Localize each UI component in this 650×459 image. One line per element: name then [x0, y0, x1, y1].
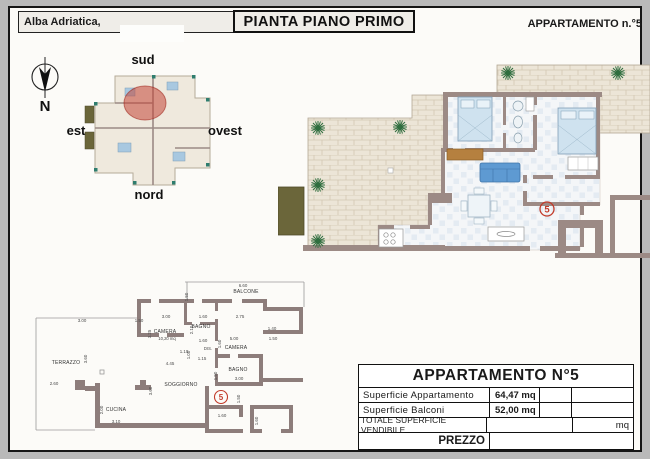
room-label-bagno1: BAGNO: [191, 324, 210, 330]
dimension-label: 1.10: [180, 349, 189, 354]
dimension-label: 2.60: [50, 381, 59, 386]
room-label-terrazzo: TERRAZZO: [52, 360, 81, 366]
unit-number: 5: [219, 393, 224, 402]
sofa: [480, 163, 520, 182]
pillow: [477, 100, 490, 108]
site-olive-blocks: [85, 106, 94, 149]
room-label-camera1: CAMERA: [154, 329, 177, 335]
apartment-summary-table: APPARTAMENTO N°5 Superficie Appartamento…: [358, 364, 634, 450]
orientation-east: est: [67, 123, 86, 138]
empty-cell: [540, 388, 572, 402]
dimension-label: 1.60: [217, 339, 222, 348]
dimension-label: 1.15: [198, 356, 207, 361]
sideboard: [447, 149, 483, 160]
empty-cell: [490, 433, 633, 449]
kitchen-counter: [379, 229, 403, 247]
room-labels: BALCONE CAMERA 10,20 mq BAGNO DIS. CAMER…: [52, 289, 259, 413]
location-label: Alba Adriatica,: [24, 16, 101, 28]
apartment-ref-label: APPARTAMENTO n.°5: [508, 18, 642, 30]
empty-cell: [572, 388, 633, 402]
shower: [526, 97, 534, 111]
dimension-label: 1.60: [199, 338, 208, 343]
row-value: 64,47 mq: [490, 388, 540, 402]
dimension-label: 6.60: [239, 283, 248, 288]
row-label: Superficie Appartamento: [359, 388, 490, 402]
dimension-label: 2.75: [236, 314, 245, 319]
table-row-price: PREZZO: [359, 433, 633, 449]
dimension-label: 1.40: [268, 326, 277, 331]
dimension-label: 4.45: [166, 361, 175, 366]
room-label-soggiorno: SOGGIORNO: [164, 382, 197, 388]
dimensioned-floor-plan: 6.60 1.50 3.00 1.60 2.75 1.40 1.50 3.25 …: [30, 276, 345, 456]
north-label: N: [40, 98, 51, 115]
dimension-label: 3.25: [147, 329, 152, 338]
dimension-label: 1.60: [218, 413, 227, 418]
large-floor-plan: 5: [278, 45, 650, 260]
dimension-label: 5.00: [230, 336, 239, 341]
toilet: [514, 116, 523, 128]
room-label-balcone: BALCONE: [233, 289, 259, 295]
dimension-label: 3.60: [148, 386, 153, 395]
page-title-box: PIANTA PIANO PRIMO: [233, 10, 415, 33]
pillow: [561, 111, 576, 119]
unit-highlight-ellipse: [124, 86, 166, 120]
dimension-label: 2.00: [99, 405, 104, 414]
room-label-camera2: CAMERA: [225, 345, 248, 351]
header-location-cell: Alba Adriatica,: [18, 11, 234, 33]
bidet: [514, 133, 522, 143]
total-label: TOTALE SUPERFICIE VENDIBILE: [359, 418, 487, 432]
table-row-total: TOTALE SUPERFICIE VENDIBILE mq: [359, 418, 633, 433]
room-label-cucina: CUCINA: [106, 407, 127, 413]
adjacent-building-block: [278, 187, 304, 235]
table-row: Superficie Appartamento 64,47 mq: [359, 388, 633, 403]
dimension-label: 3.60: [83, 354, 88, 363]
dimension-label: 1.60: [254, 416, 259, 425]
room-area-camera1: 10,20 mq: [158, 336, 176, 341]
room-label-bagno2: BAGNO: [228, 367, 247, 373]
price-label: PREZZO: [359, 433, 490, 449]
terrace-drain: [388, 168, 393, 173]
dining-table: [468, 195, 490, 217]
pillow: [461, 100, 474, 108]
unit-number: 5: [544, 205, 550, 216]
row-value: 52,00 mq: [490, 403, 540, 417]
dimension-label: 3.00: [78, 318, 87, 323]
empty-cell: [540, 403, 572, 417]
empty-cell: [487, 418, 573, 432]
page-title: PIANTA PIANO PRIMO: [243, 14, 404, 30]
dimension-label: 1.50: [184, 292, 189, 301]
table-title: APPARTAMENTO N°5: [359, 365, 633, 388]
empty-cell: [572, 403, 633, 417]
whiteout-patch: [120, 25, 184, 42]
sink: [513, 101, 523, 111]
orientation-west: ovest: [208, 123, 243, 138]
dimension-label: 1.50: [135, 318, 144, 323]
dimension-label: 3.00: [162, 314, 171, 319]
wardrobe: [568, 157, 598, 170]
orientation-north: nord: [135, 187, 164, 202]
site-orientation-plan: sud est ovest nord: [55, 48, 255, 205]
dimension-label: 3.00: [235, 376, 244, 381]
dimension-label: 3.10: [112, 419, 121, 424]
room-label-dis: DIS.: [204, 346, 212, 351]
dimension-label: 1.50: [236, 394, 241, 403]
dimension-label: 1.50: [269, 336, 278, 341]
orientation-south: sud: [131, 52, 154, 67]
dimension-label: 1.60: [199, 314, 208, 319]
pillow: [579, 111, 594, 119]
total-unit: mq: [573, 418, 633, 432]
island-counter: [488, 227, 524, 241]
dimension-label: 1.50: [213, 371, 218, 380]
scanned-floorplan-page: Alba Adriatica, PIANTA PIANO PRIMO APPAR…: [0, 0, 650, 459]
